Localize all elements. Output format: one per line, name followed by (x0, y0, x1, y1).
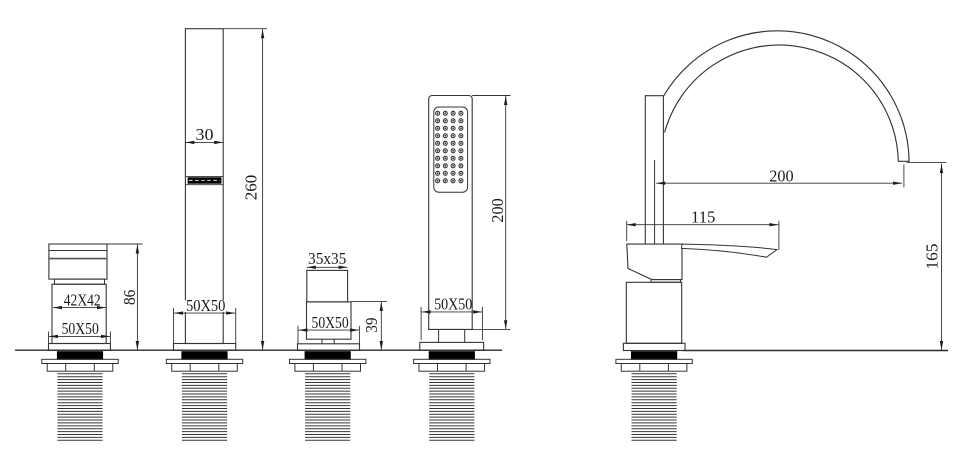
svg-text:200: 200 (488, 198, 507, 222)
svg-text:200: 200 (769, 166, 793, 185)
svg-text:260: 260 (242, 175, 261, 200)
svg-text:165: 165 (923, 244, 942, 270)
svg-text:115: 115 (691, 207, 715, 226)
svg-text:86: 86 (120, 289, 139, 305)
svg-text:39: 39 (362, 317, 381, 332)
svg-text:50X50: 50X50 (312, 313, 349, 332)
svg-text:50X50: 50X50 (186, 296, 226, 315)
svg-text:42X42: 42X42 (64, 290, 101, 309)
svg-text:50X50: 50X50 (434, 295, 472, 314)
svg-text:50X50: 50X50 (62, 319, 99, 338)
svg-text:35x35: 35x35 (308, 249, 346, 268)
svg-text:30: 30 (196, 125, 214, 144)
